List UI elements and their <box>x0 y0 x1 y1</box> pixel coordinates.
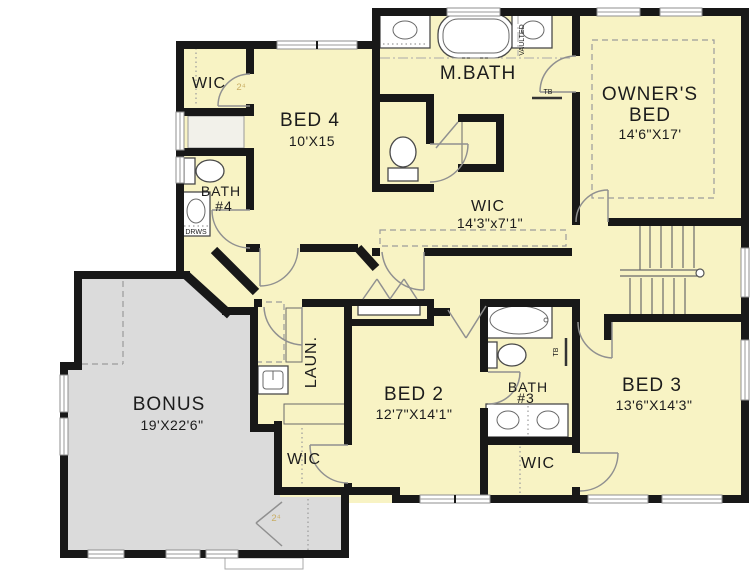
bath4-label: BATH <box>201 183 241 199</box>
owner-wic-dims: 14'3"x7'1" <box>457 215 523 231</box>
bed4-label: BED 4 <box>280 110 340 131</box>
bed2-label: BED 2 <box>384 384 444 405</box>
window <box>588 495 648 503</box>
owner-bed-dims: 14'6"X17' <box>618 126 681 142</box>
shower-icon <box>188 116 244 148</box>
window <box>166 550 200 558</box>
window <box>447 8 500 16</box>
bonus-door-tag: 2⁴ <box>271 513 280 524</box>
toilet-icon <box>487 342 526 368</box>
bonus-dims: 19'X22'6" <box>140 417 203 433</box>
window <box>60 418 68 455</box>
double-vanity-icon <box>486 404 568 437</box>
window <box>597 8 640 16</box>
owner-bed-label-2: BED <box>629 105 671 126</box>
bed2-dims: 12'7"X14'1" <box>376 406 453 422</box>
window <box>176 112 184 150</box>
toilet-icon <box>388 137 418 181</box>
bath4-drawers-label: DRWS <box>185 229 207 236</box>
bed3-label: BED 3 <box>622 375 682 396</box>
window <box>662 495 722 503</box>
laundry-sink-icon <box>258 366 288 394</box>
newel-post <box>696 269 704 277</box>
floor-plan-svg: WIC 2⁴ BED 4 10'X15 BATH #4 DRWS M.BATH … <box>0 0 750 581</box>
wic3-label: WIC <box>521 455 555 472</box>
window <box>420 495 490 503</box>
window <box>741 248 749 297</box>
floor-plan-canvas: WIC 2⁴ BED 4 10'X15 BATH #4 DRWS M.BATH … <box>0 0 750 581</box>
wic4-door-tag: 2⁴ <box>236 82 245 93</box>
owner-wic-label: WIC <box>471 198 505 215</box>
vaulted-label: VAULTED <box>519 24 526 55</box>
owner-bed-label-1: OWNER'S <box>602 84 698 105</box>
window <box>206 550 238 558</box>
toilet-icon <box>184 158 224 184</box>
mbath-label: M.BATH <box>440 63 516 84</box>
bath3-number: #3 <box>517 390 535 406</box>
window <box>176 157 184 183</box>
window <box>277 41 357 49</box>
wic4-label: WIC <box>192 75 226 92</box>
laundry-label: LAUN. <box>303 336 320 388</box>
bath4-number: #4 <box>215 198 233 214</box>
bonus-label: BONUS <box>133 394 206 415</box>
bathtub-icon <box>486 302 552 338</box>
towel-bar-label: TB <box>544 89 553 96</box>
window <box>88 550 124 558</box>
porch-step <box>225 558 303 569</box>
window <box>60 375 68 412</box>
bed3-dims: 13'6"X14'3" <box>616 397 693 413</box>
wic2-label: WIC <box>287 451 321 468</box>
bathtub-icon <box>438 14 514 58</box>
bed4-dims: 10'X15 <box>289 133 335 149</box>
towel-bar-label: TB <box>553 347 560 356</box>
vanity-sink-icon <box>380 12 430 48</box>
window <box>741 340 749 400</box>
window <box>660 8 702 16</box>
